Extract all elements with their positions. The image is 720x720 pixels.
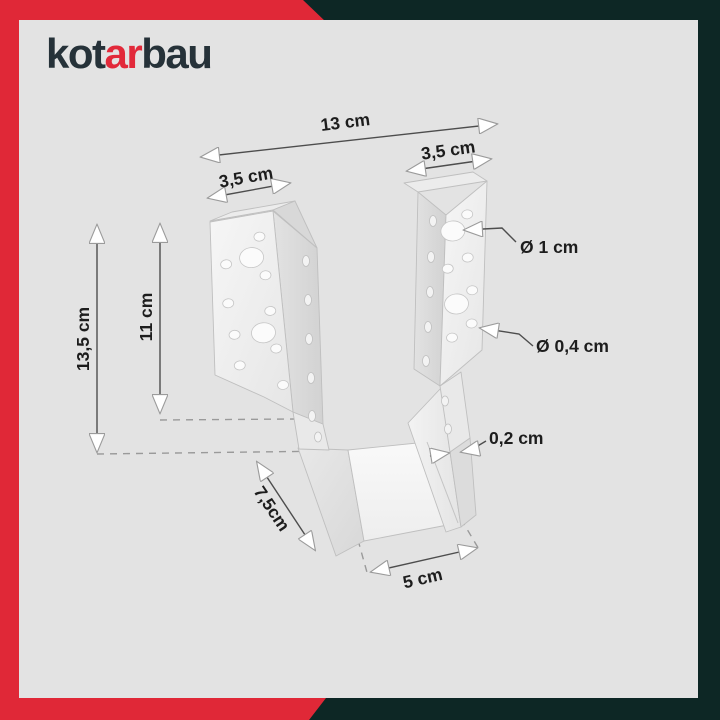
dim-label-side-height: 11 cm [136,293,156,342]
dim-label-large-hole: Ø 1 cm [520,237,578,257]
joist-hanger-illustration [210,172,487,556]
dim-flange-right: 3,5 cm [407,136,491,171]
small-hole [423,356,430,367]
small-hole [306,334,313,345]
extension-line-inner-width-left [358,540,368,576]
dim-overall-height: 13,5 cm [73,225,97,452]
right-strap-hole [442,396,449,406]
dim-small-hole: Ø 0,4 cm [480,328,609,356]
extension-line-side-height [160,419,294,420]
dim-label-flange-right: 3,5 cm [420,136,477,163]
small-hole [428,252,435,263]
small-hole [303,256,310,267]
small-hole [305,295,312,306]
left-strap-hole [315,432,322,442]
dim-flange-left: 3,5 cm [208,163,290,198]
dim-label-overall-height: 13,5 cm [73,307,93,371]
extension-line-overall-height [97,451,333,454]
small-hole [425,322,432,333]
small-hole [309,411,316,422]
right-flange-top-lip [404,172,487,192]
leader-small-hole [480,328,533,346]
dim-label-thickness: 0,2 cm [489,428,543,448]
dim-side-height: 11 cm [136,224,160,413]
joist-hanger-diagram: 13 cm 3,5 cm 3,5 cm 13,5 cm 11 cm Ø 1 cm [0,0,720,720]
product-card: kotarbau [0,0,720,720]
dim-line-flange-right [407,159,491,171]
small-hole [427,287,434,298]
dim-inner-width: 5 cm [371,548,477,592]
small-hole [308,373,315,384]
dim-label-inner-width: 5 cm [401,564,444,592]
dim-label-total-width: 13 cm [319,109,371,135]
small-hole [430,216,437,227]
dim-depth: 7,5cm [250,462,315,550]
right-strap-hole [445,424,452,434]
dim-label-small-hole: Ø 0,4 cm [536,336,609,356]
